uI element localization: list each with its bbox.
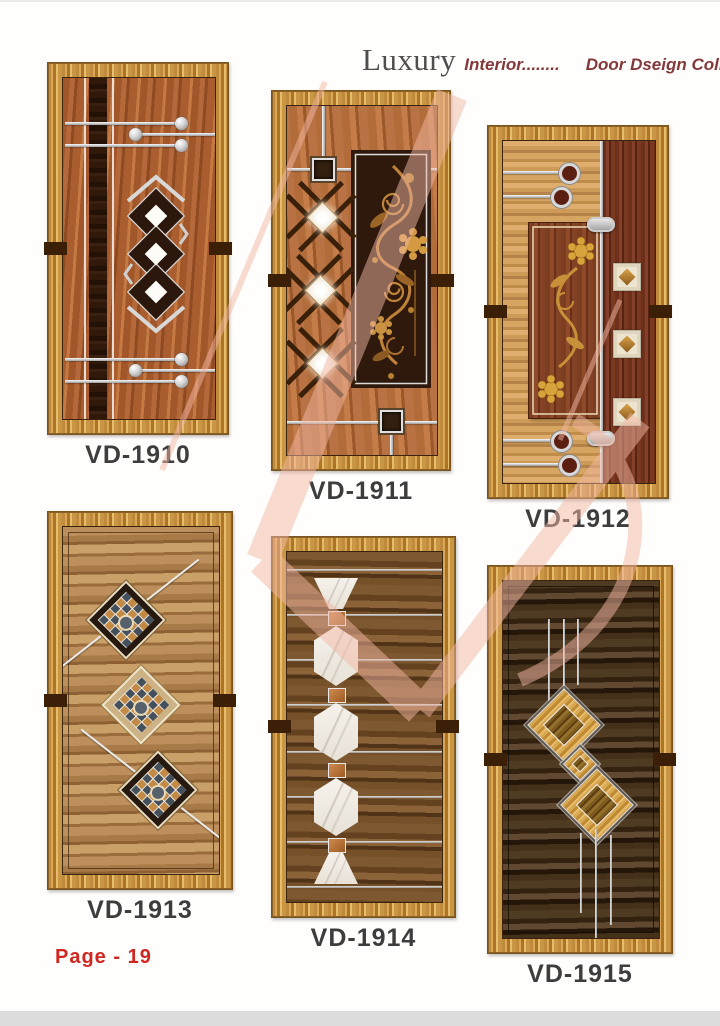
cross-motif [292, 333, 350, 391]
page-top-edge [0, 0, 720, 2]
hinge-tab-right [436, 720, 459, 733]
inlay-square [380, 410, 403, 433]
door-artwork-vd-1915 [503, 581, 659, 938]
diamond-chain-motif [123, 172, 189, 336]
door-code-label: VD-1914 [271, 924, 456, 953]
inlay-square [312, 158, 335, 181]
door-artwork-vd-1910 [63, 78, 215, 419]
cross-motif [292, 187, 350, 245]
hinge-tab-right [209, 242, 232, 255]
cross-motif [290, 260, 348, 318]
door-artwork-vd-1913 [63, 527, 219, 874]
catalog-page: Luxury Interior........ Door Dseign Coll… [0, 0, 720, 1026]
door-card-vd-1910: VD-1910 [47, 62, 229, 470]
door-frame [487, 565, 673, 954]
door-code-label: VD-1913 [47, 896, 233, 925]
collection-title: Door Dseign Collecation.... [586, 55, 720, 75]
door-handle [587, 217, 615, 232]
door-artwork-vd-1914 [287, 552, 442, 902]
gold-diamond [560, 768, 634, 842]
floral-panel-motif [351, 150, 431, 388]
hinge-tab-left [44, 694, 67, 707]
door-card-vd-1912: VD-1912 [487, 125, 669, 534]
door-frame [271, 90, 451, 471]
hinge-tab-left [44, 242, 67, 255]
ring-knob [551, 187, 572, 208]
ring-knob [559, 163, 580, 184]
ring-knob [551, 431, 572, 452]
door-card-vd-1914: VD-1914 [271, 536, 456, 953]
brand-tagline: Interior........ [464, 55, 559, 75]
door-frame [47, 62, 229, 435]
hinge-tab-right [431, 274, 454, 287]
door-handle [587, 431, 615, 446]
page-bottom-edge [0, 1011, 720, 1026]
gold-diamond [527, 688, 601, 762]
door-card-vd-1915: VD-1915 [487, 565, 673, 989]
page-number: Page - 19 [55, 946, 152, 969]
hinge-tab-right [649, 305, 672, 318]
door-card-vd-1911: VD-1911 [271, 90, 451, 506]
floral-panel [529, 223, 601, 418]
hinge-tab-left [484, 753, 507, 766]
mosaic-diamond [118, 750, 197, 829]
inlay-tile [613, 263, 641, 291]
door-frame [487, 125, 669, 499]
door-code-label: VD-1912 [487, 505, 669, 534]
door-artwork-vd-1912 [503, 141, 655, 483]
door-code-label: VD-1915 [487, 960, 673, 989]
brand-title: Luxury [362, 42, 456, 78]
hinge-tab-right [213, 694, 236, 707]
door-code-label: VD-1910 [47, 441, 229, 470]
inlay-tile [613, 398, 641, 426]
hinge-tab-left [268, 274, 291, 287]
hinge-tab-left [268, 720, 291, 733]
marble-chain-motif [314, 552, 358, 902]
door-frame [47, 511, 233, 890]
door-code-label: VD-1911 [271, 477, 451, 506]
door-card-vd-1913: VD-1913 [47, 511, 233, 925]
door-frame [271, 536, 456, 918]
hinge-tab-left [484, 305, 507, 318]
ring-knob [559, 455, 580, 476]
hinge-tab-right [653, 753, 676, 766]
page-header: Luxury Interior........ Door Dseign Coll… [362, 42, 720, 78]
mosaic-diamond [101, 665, 180, 744]
inlay-tile [613, 330, 641, 358]
door-artwork-vd-1911 [287, 106, 437, 455]
